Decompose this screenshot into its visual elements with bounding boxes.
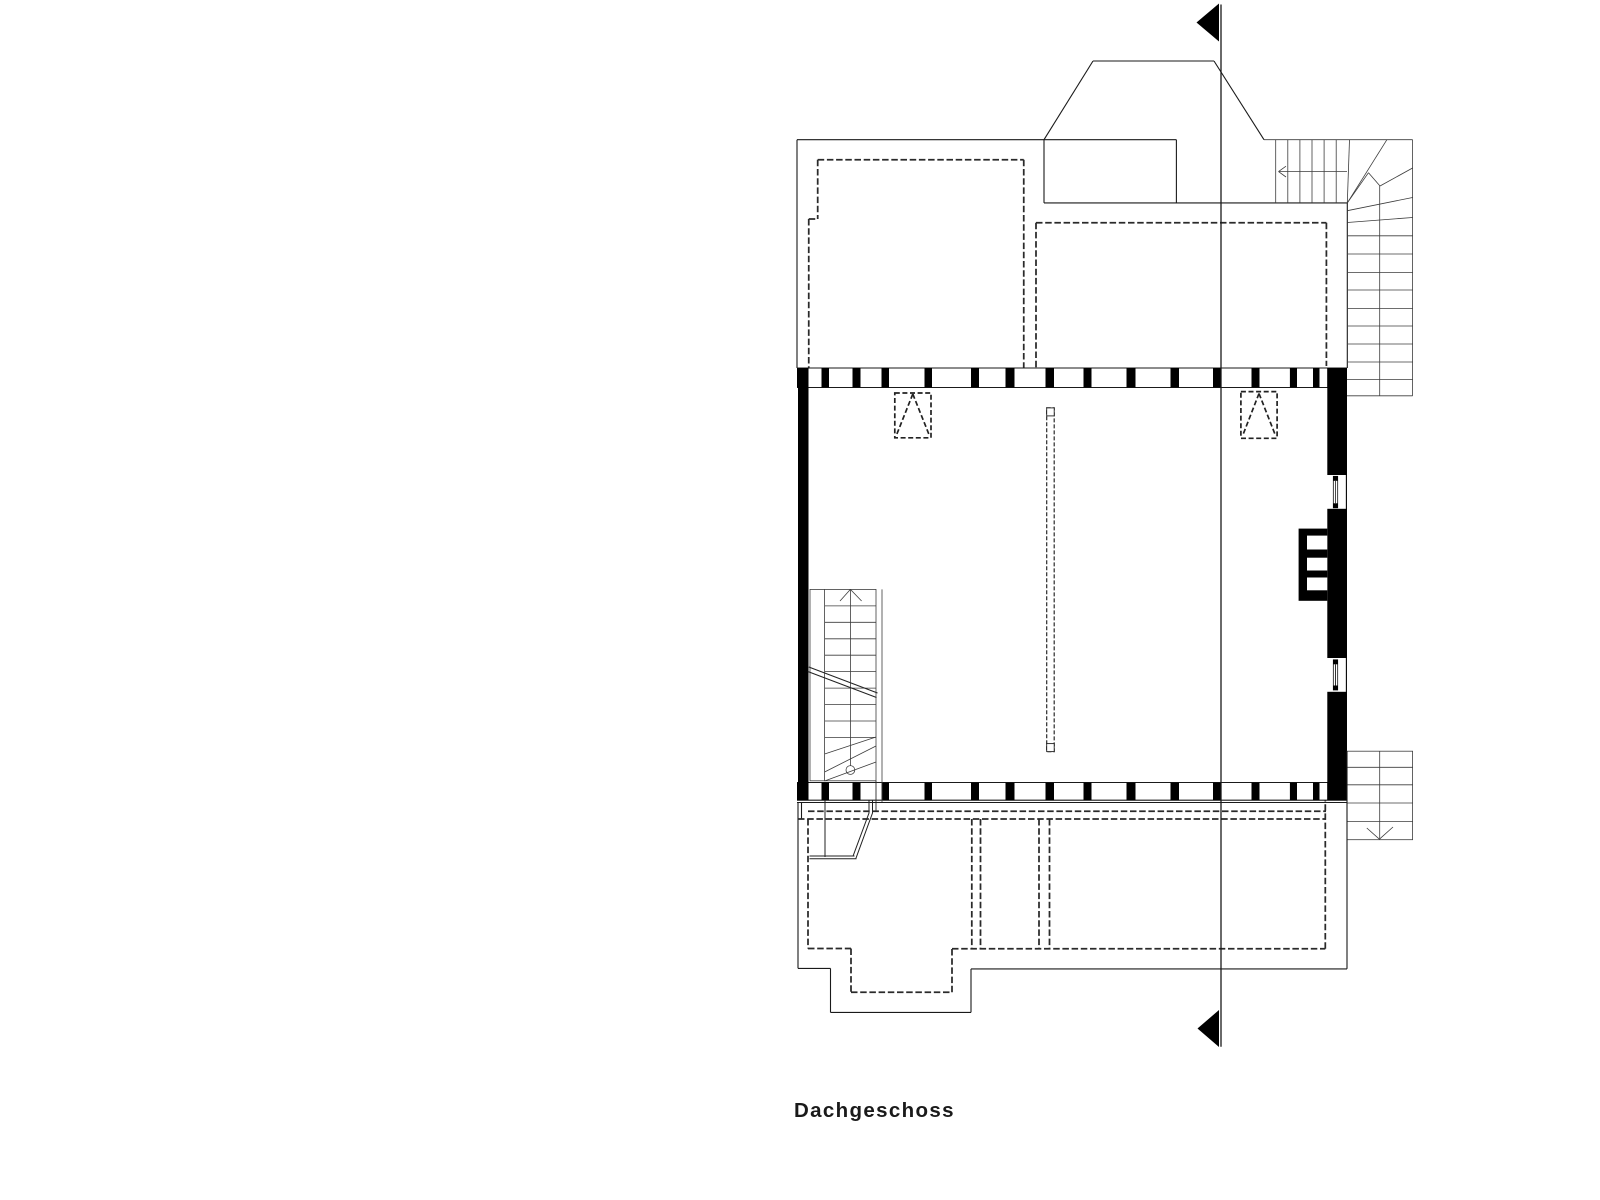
svg-text:Dachgeschoss: Dachgeschoss	[794, 1099, 955, 1122]
